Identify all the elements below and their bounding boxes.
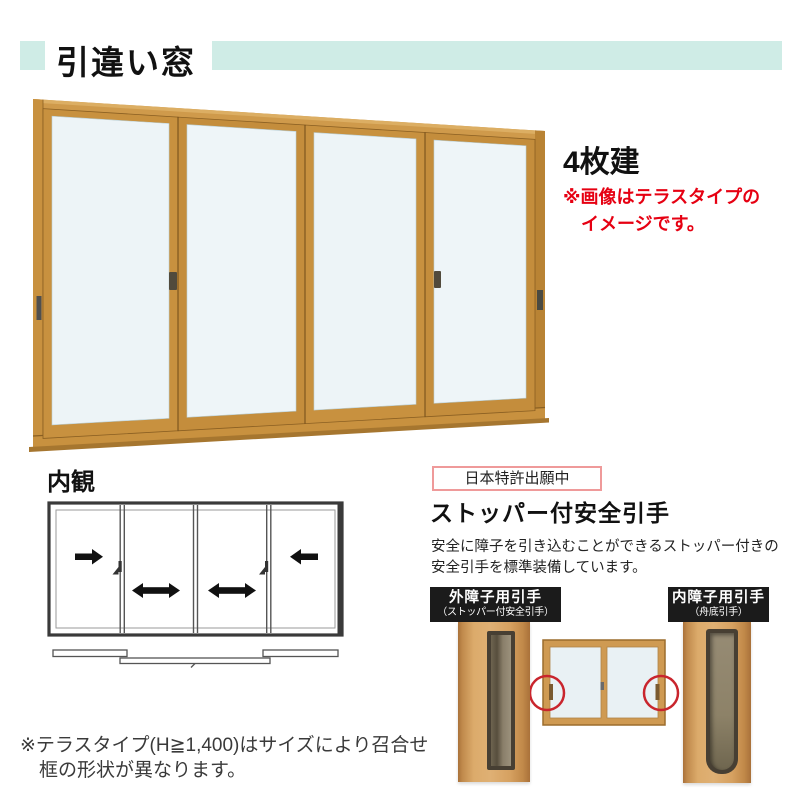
title-accent-square [20,41,45,70]
footnote-line2: 框の形状が異なります。 [20,758,428,783]
diagram-right-edge [338,503,343,635]
page-title: 引違い窓 [56,36,196,84]
window-glass-panes [52,116,526,425]
outer-handle-subtitle: （ストッパー付安全引手） [430,607,561,619]
left-jamb-handle-icon [37,296,42,320]
panel4-handle-icon [434,271,441,288]
diagram-outer-frame [49,503,342,635]
mini-window-lock-icon [601,682,605,690]
terrace-note-line1: ※画像はテラスタイプの [563,184,760,211]
inner-handle-recess [706,629,738,774]
feature-description-line1: 安全に障子を引き込むことができるストッパー付きの [431,537,779,558]
outer-handle-recess [487,631,515,770]
outer-handle-title: 外障子用引手 [430,590,561,607]
footnote-line1: ※テラスタイプ(H≧1,400)はサイズにより召合せ [20,733,428,758]
mini-window-right-handle-icon [656,684,660,700]
terrace-note-line2: イメージです。 [563,211,760,238]
interior-view-diagram [45,498,350,673]
outer-handle-face [491,635,511,766]
feature-description: 安全に障子を引き込むことができるストッパー付きの 安全引手を標準装備しています。 [431,537,779,579]
inner-handle-face [710,633,734,770]
inner-handle-label: 内障子用引手 （舟底引手） [668,587,769,622]
outer-handle-image [458,622,530,782]
handle-location-illustration [530,635,680,735]
glass-pane-4 [434,140,526,403]
inner-handle-subtitle: （舟底引手） [668,607,769,619]
outer-handle-label: 外障子用引手 （ストッパー付安全引手） [430,587,561,622]
diagram-track-plan-view [53,650,338,668]
glass-pane-2 [187,125,296,418]
mini-window-left-handle-icon [549,684,553,700]
feature-description-line2: 安全引手を標準装備しています。 [431,558,779,579]
inner-handle-image [683,622,751,783]
main-window-image [25,88,555,460]
interior-view-label: 内観 [47,462,95,497]
panel2-handle-icon [169,272,177,290]
panel-count-label: 4枚建 [563,137,640,181]
footnote: ※テラスタイプ(H≧1,400)はサイズにより召合せ 框の形状が異なります。 [20,733,428,783]
glass-pane-1 [52,116,169,425]
title-accent-bar [212,41,782,70]
glass-pane-3 [314,133,416,411]
inner-handle-title: 内障子用引手 [668,590,769,607]
right-jamb-handle-icon [537,290,543,310]
terrace-type-note: ※画像はテラスタイプの イメージです。 [563,184,760,238]
feature-heading: ストッパー付安全引手 [430,494,670,528]
patent-pending-badge: 日本特許出願中 [432,466,602,491]
